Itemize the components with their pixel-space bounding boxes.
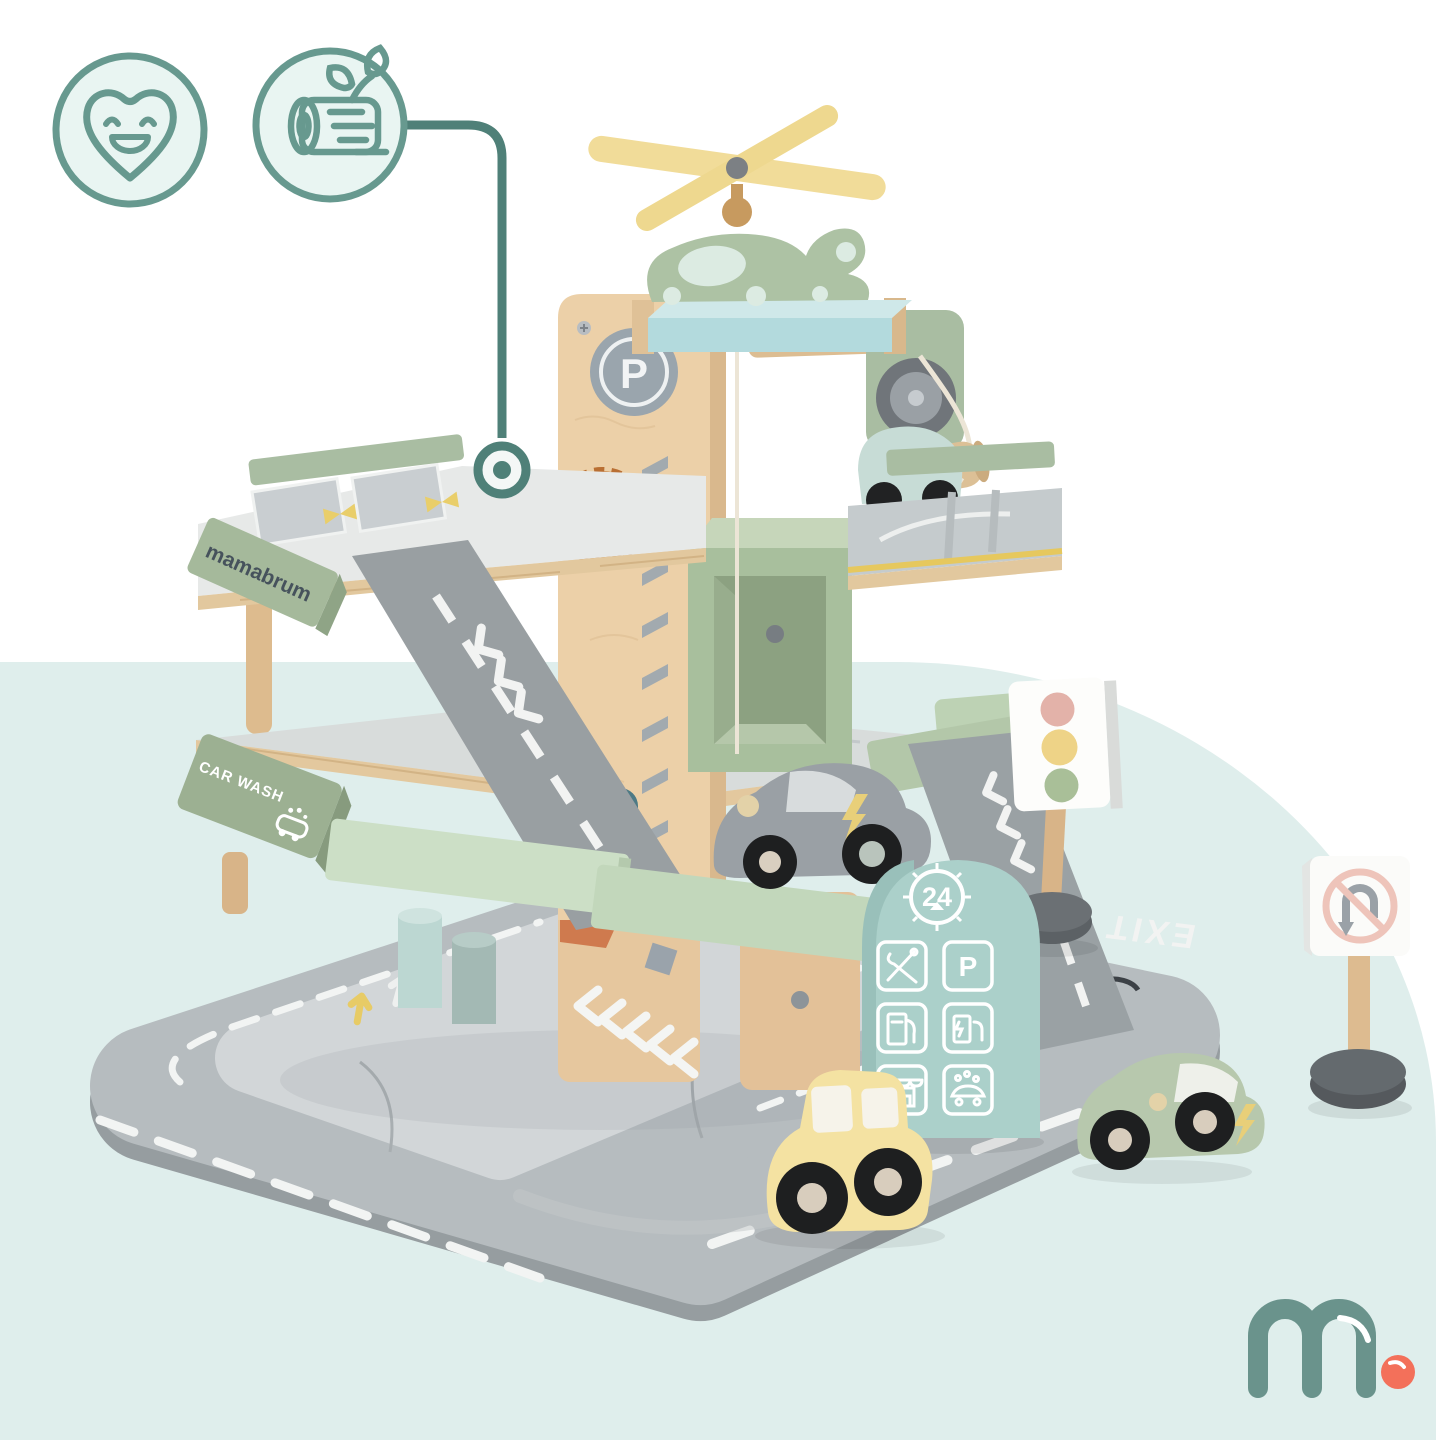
arch-hours: 24 [922, 882, 952, 912]
helipad [632, 298, 912, 354]
callout-connector [404, 125, 502, 438]
brand-logo [1258, 1309, 1415, 1389]
toy-scene: EXIT [0, 0, 1440, 1440]
exit-road-marking: EXIT [1100, 907, 1199, 955]
propeller [587, 101, 888, 235]
logo-dot [1381, 1355, 1415, 1389]
no-u-turn-sign [1302, 856, 1412, 1119]
product-photo: EXIT [0, 0, 1440, 1440]
arch-parking-letter: P [959, 951, 978, 982]
wood-leg [222, 852, 248, 914]
feature-badges [56, 48, 526, 494]
wood-leg [246, 592, 272, 734]
wood-log-icon [256, 48, 404, 199]
helicopter [587, 101, 888, 306]
mint-pillar [398, 916, 442, 1008]
elevator-cube [688, 518, 876, 772]
mint-pillar [452, 940, 496, 1024]
tower-parking-letter: P [620, 350, 648, 397]
heart-smile-icon [56, 56, 204, 204]
